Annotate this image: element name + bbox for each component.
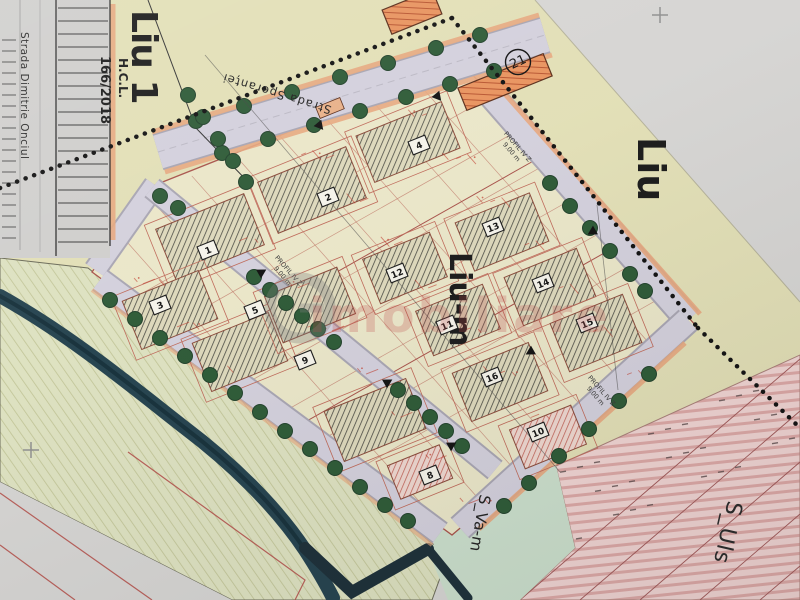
site-plan: Liu 1 H.C.L. 166/2018 Strada Dimitrie On… [0, 0, 800, 600]
tree-icon [128, 312, 143, 327]
tree-icon [623, 267, 638, 282]
tree-icon [278, 424, 293, 439]
tree-icon [497, 499, 512, 514]
tree-icon [333, 70, 348, 85]
street-label-onciul: Strada Dimitrie Onciul [18, 32, 30, 159]
tree-icon [455, 439, 470, 454]
tree-icon [279, 296, 294, 311]
tree-icon [228, 386, 243, 401]
tree-icon [543, 176, 558, 191]
tree-icon [391, 383, 406, 398]
tree-icon [563, 199, 578, 214]
tree-icon [211, 132, 226, 147]
tree-icon [603, 244, 618, 259]
tree-icon [353, 104, 368, 119]
tree-icon [401, 514, 416, 529]
watermark-text: imobiliare [309, 288, 611, 344]
tree-icon [261, 132, 276, 147]
tree-icon [429, 41, 444, 56]
tree-icon [407, 396, 422, 411]
tree-icon [153, 331, 168, 346]
tree-icon [423, 410, 438, 425]
tree-icon [226, 154, 241, 169]
tree-icon [181, 88, 196, 103]
tree-icon [443, 77, 458, 92]
tree-icon [439, 424, 454, 439]
tree-icon [171, 201, 186, 216]
site-plan-photo: Liu 1 H.C.L. 166/2018 Strada Dimitrie On… [0, 0, 800, 600]
zone-label-hcl: H.C.L. [116, 58, 130, 98]
tree-icon [303, 442, 318, 457]
tree-icon [582, 422, 597, 437]
tree-icon [522, 476, 537, 491]
tree-icon [239, 175, 254, 190]
tree-icon [552, 449, 567, 464]
watermark: imobiliare [270, 278, 611, 344]
tree-icon [378, 498, 393, 513]
tree-icon [103, 293, 118, 308]
parcel-21-badge: 21 [506, 50, 531, 75]
tree-icon [353, 480, 368, 495]
tree-icon [328, 461, 343, 476]
tree-icon [153, 189, 168, 204]
tree-icon [381, 56, 396, 71]
tree-icon [399, 90, 414, 105]
tree-icon [638, 284, 653, 299]
road-onciul [0, 0, 110, 258]
tree-icon [253, 405, 268, 420]
tree-icon [203, 368, 218, 383]
zone-label-liu: Liu [629, 137, 673, 201]
zone-label-hcl-number: 166/2018 [97, 56, 112, 124]
tree-icon [642, 367, 657, 382]
tree-icon [178, 349, 193, 364]
tree-icon [473, 28, 488, 43]
